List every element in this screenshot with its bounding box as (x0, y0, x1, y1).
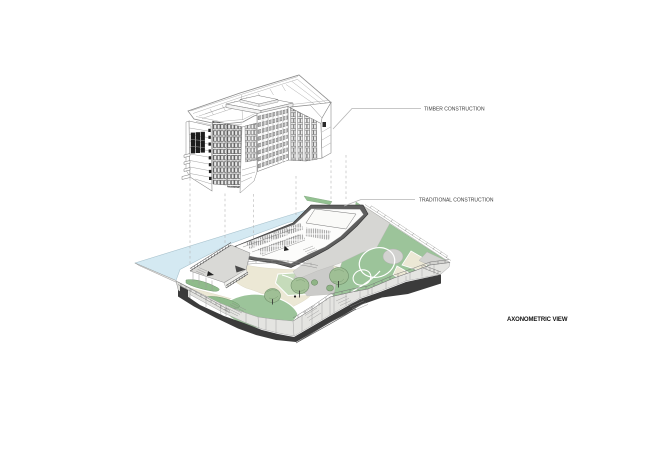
svg-text:TIMBER CONSTRUCTION: TIMBER CONSTRUCTION (424, 106, 485, 112)
svg-text:TRADITIONAL CONSTRUCTION: TRADITIONAL CONSTRUCTION (419, 197, 494, 203)
svg-text:AXONOMETRIC VIEW: AXONOMETRIC VIEW (507, 317, 568, 323)
